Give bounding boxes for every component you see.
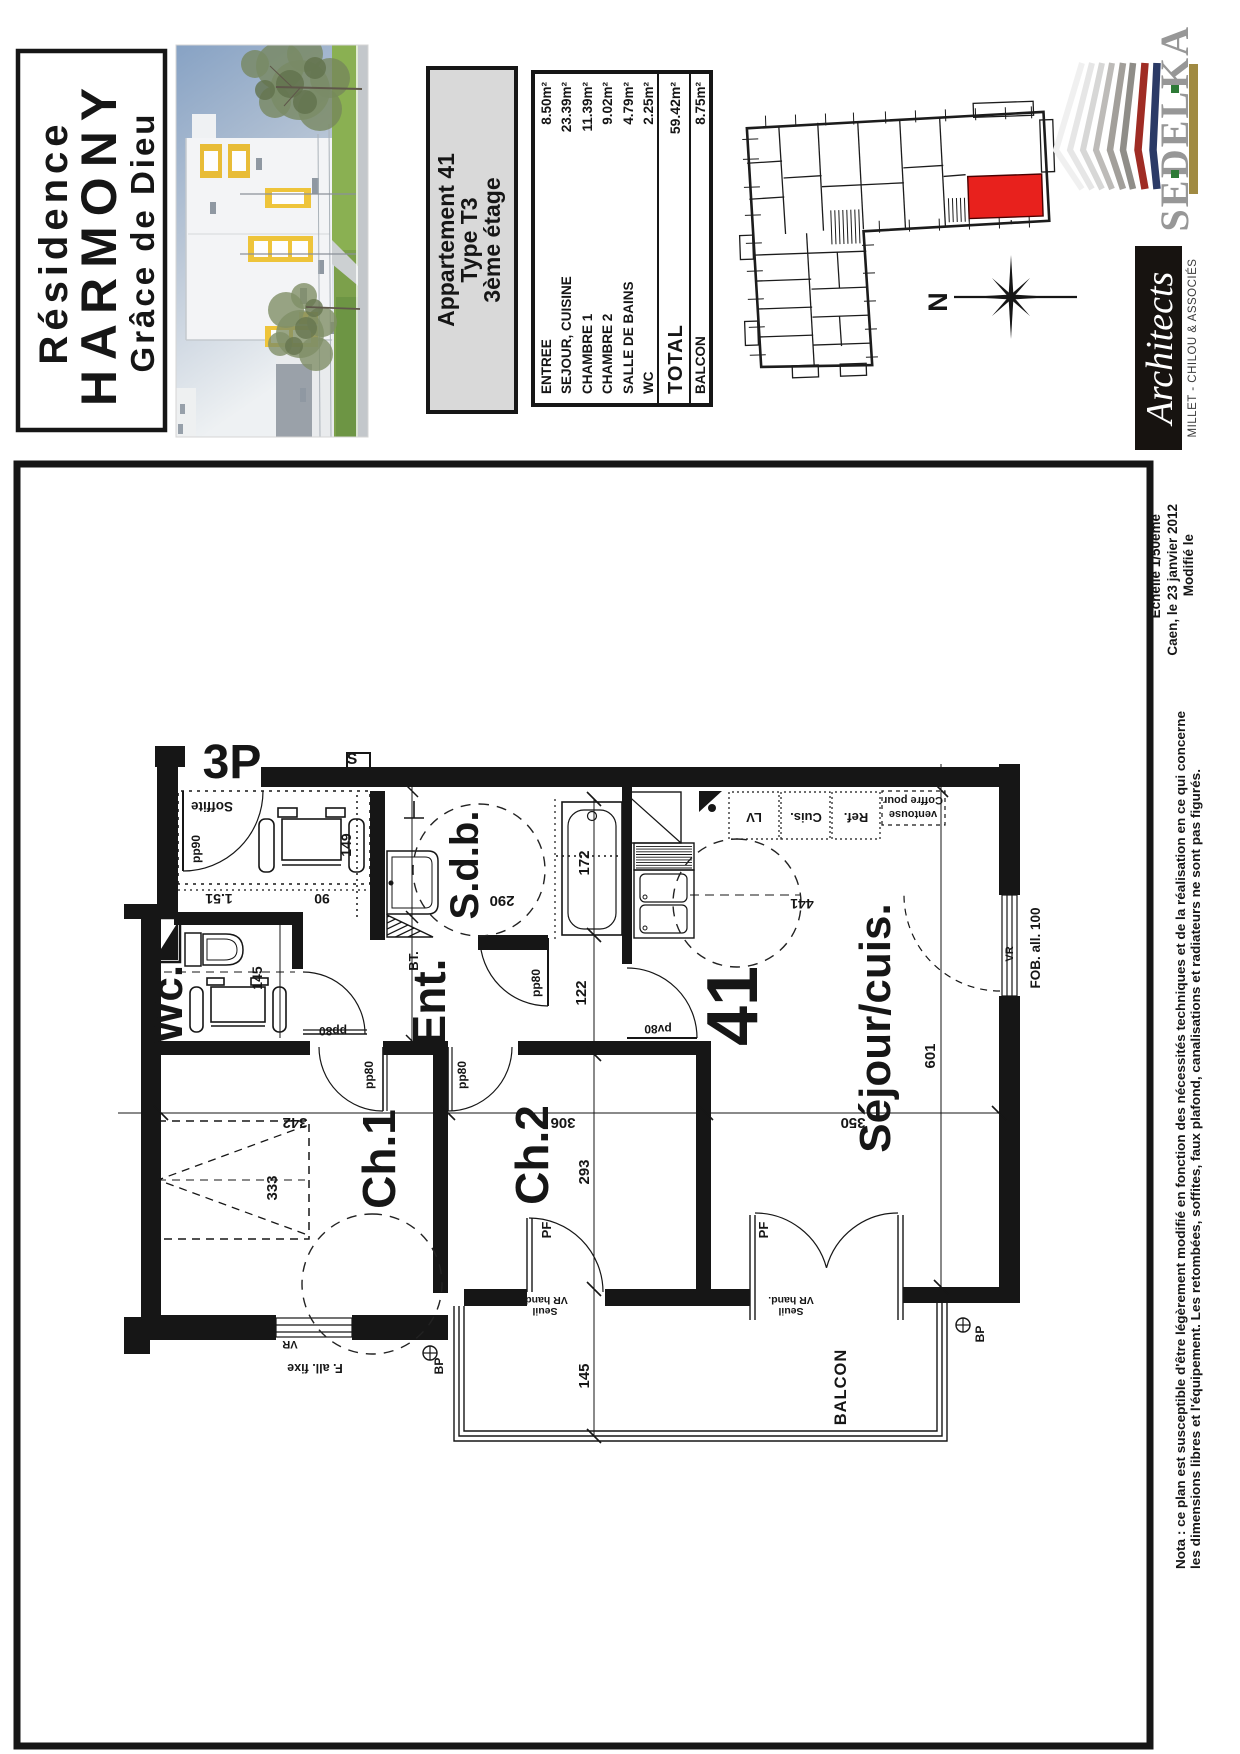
svg-text:PF: PF <box>756 1222 771 1239</box>
svg-text:1.51: 1.51 <box>205 891 232 907</box>
svg-text:145: 145 <box>249 966 265 990</box>
svg-text:Ch.1: Ch.1 <box>353 1109 405 1209</box>
svg-text:TOTAL: TOTAL <box>665 324 687 394</box>
svg-text:VR: VR <box>282 1338 297 1350</box>
svg-text:Cuis.: Cuis. <box>790 810 822 825</box>
svg-text:Ch.2: Ch.2 <box>506 1105 558 1205</box>
svg-text:172: 172 <box>576 850 593 875</box>
svg-text:333: 333 <box>264 1175 281 1200</box>
svg-text:ENTREE: ENTREE <box>539 339 554 394</box>
svg-text:41: 41 <box>693 966 773 1046</box>
svg-text:Architects: Architects <box>1139 272 1181 428</box>
svg-text:601: 601 <box>922 1043 939 1068</box>
svg-text:pp90: pp90 <box>189 835 203 863</box>
svg-text:S.d.b.: S.d.b. <box>443 811 487 920</box>
svg-text:23.39m²: 23.39m² <box>559 82 574 133</box>
svg-text:Résidence: Résidence <box>32 119 76 364</box>
svg-text:BALCON: BALCON <box>832 1349 850 1426</box>
svg-text:8.75m²: 8.75m² <box>693 82 708 125</box>
svg-text:F. all. fixe: F. all. fixe <box>287 1361 343 1375</box>
svg-text:59.42m²: 59.42m² <box>667 82 683 134</box>
svg-text:Ref.: Ref. <box>844 810 869 825</box>
svg-text:9.02m²: 9.02m² <box>600 82 615 125</box>
svg-text:8.50m²: 8.50m² <box>539 82 554 125</box>
svg-text:290: 290 <box>489 892 514 909</box>
svg-text:Seuil: Seuil <box>778 1305 803 1317</box>
svg-text:CHAMBRE 2: CHAMBRE 2 <box>600 314 615 394</box>
svg-text:HARMONY: HARMONY <box>71 78 127 406</box>
svg-text:4.79m²: 4.79m² <box>621 82 636 125</box>
svg-text:VR hand.: VR hand. <box>522 1294 568 1306</box>
svg-text:441: 441 <box>790 896 814 912</box>
svg-text:Caen, le 23 janvier 2012: Caen, le 23 janvier 2012 <box>1165 504 1180 656</box>
svg-text:MILLET - CHILOU & ASSOCIÉS: MILLET - CHILOU & ASSOCIÉS <box>1186 259 1199 438</box>
svg-text:pp80: pp80 <box>319 1024 347 1038</box>
svg-text:Seuil: Seuil <box>532 1305 557 1317</box>
svg-text:293: 293 <box>576 1159 593 1184</box>
svg-text:les dimensions libres et l'équ: les dimensions libres et l'équipement. L… <box>1188 769 1203 1569</box>
svg-text:Soffite: Soffite <box>191 799 233 814</box>
svg-text:Modifié le: Modifié le <box>1181 534 1196 597</box>
svg-text:PF: PF <box>539 1222 554 1239</box>
svg-text:WC: WC <box>641 371 656 394</box>
svg-text:350: 350 <box>840 1114 865 1131</box>
svg-text:145: 145 <box>576 1363 593 1388</box>
svg-text:BT.: BT. <box>406 951 421 971</box>
svg-text:Coffre pour: Coffre pour <box>882 794 943 806</box>
svg-text:N: N <box>923 292 953 312</box>
svg-text:90: 90 <box>314 891 330 907</box>
svg-text:LV: LV <box>746 810 762 825</box>
svg-text:342: 342 <box>282 1114 307 1131</box>
svg-text:pp80: pp80 <box>362 1061 376 1089</box>
svg-text:Grâce de Dieu: Grâce de Dieu <box>124 112 161 373</box>
svg-text:11.39m²: 11.39m² <box>580 82 595 132</box>
svg-text:3P: 3P <box>203 736 262 789</box>
svg-text:pp80: pp80 <box>529 969 543 997</box>
svg-text:pv80: pv80 <box>644 1022 672 1036</box>
svg-text:Nota : ce plan est susceptible: Nota : ce plan est susceptible d'être lé… <box>1173 711 1188 1569</box>
svg-text:306: 306 <box>550 1114 575 1131</box>
svg-text:FOB. all. 100: FOB. all. 100 <box>1028 907 1043 988</box>
svg-text:BP: BP <box>973 1326 987 1343</box>
svg-text:S: S <box>347 751 358 768</box>
svg-text:3ème étage: 3ème étage <box>479 177 505 302</box>
svg-text:VR hand.: VR hand. <box>768 1294 814 1306</box>
svg-text:122: 122 <box>573 980 590 1005</box>
svg-text:BP: BP <box>432 1358 446 1375</box>
svg-text:VR: VR <box>1004 946 1016 961</box>
svg-text:149: 149 <box>338 833 354 857</box>
svg-text:Echelle 1/50ème: Echelle 1/50ème <box>1148 514 1163 619</box>
svg-text:SEJOUR, CUISINE: SEJOUR, CUISINE <box>559 276 574 394</box>
svg-text:SALLE DE BAINS: SALLE DE BAINS <box>621 281 636 394</box>
svg-text:ventouse: ventouse <box>889 808 937 820</box>
svg-text:2.25m²: 2.25m² <box>641 82 656 125</box>
svg-text:Wc.: Wc. <box>143 965 192 1043</box>
svg-text:pp80: pp80 <box>455 1061 469 1089</box>
svg-text:BALCON: BALCON <box>693 336 708 394</box>
svg-text:CHAMBRE 1: CHAMBRE 1 <box>580 313 595 394</box>
